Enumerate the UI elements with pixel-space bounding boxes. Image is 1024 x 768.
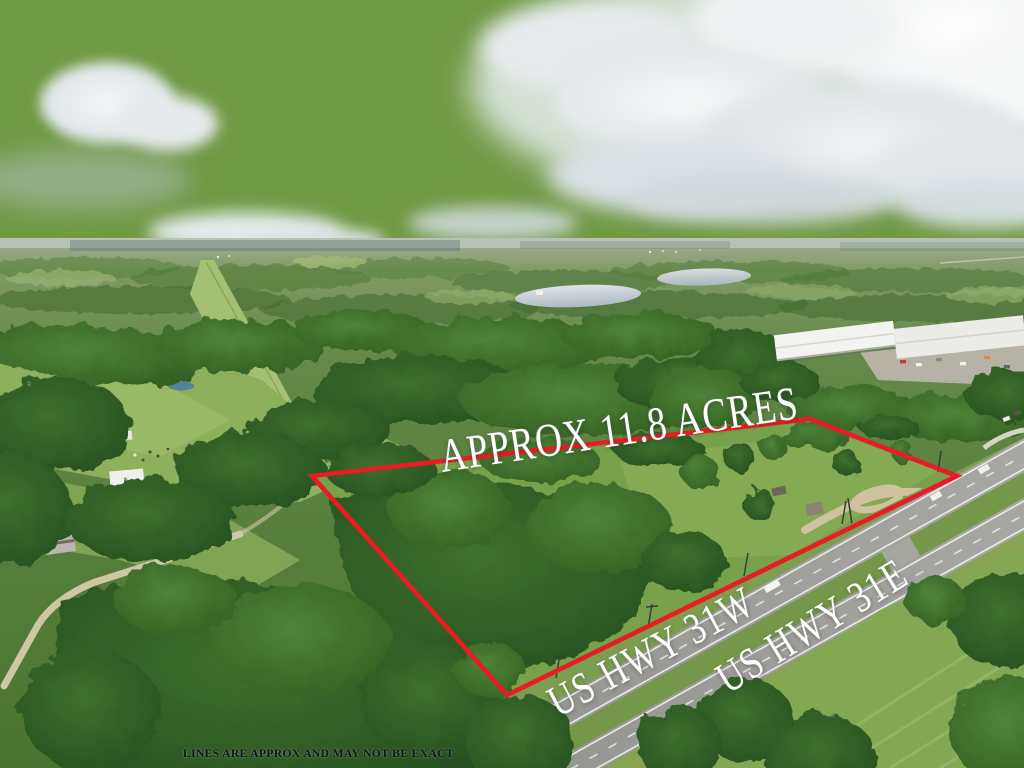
landscape-graphic (0, 0, 1024, 768)
aerial-photo: APPROX 11.8 ACRES US HWY 31W US HWY 31E … (0, 0, 1024, 768)
disclaimer-text: LINES ARE APPROX AND MAY NOT BE EXACT (183, 748, 454, 760)
